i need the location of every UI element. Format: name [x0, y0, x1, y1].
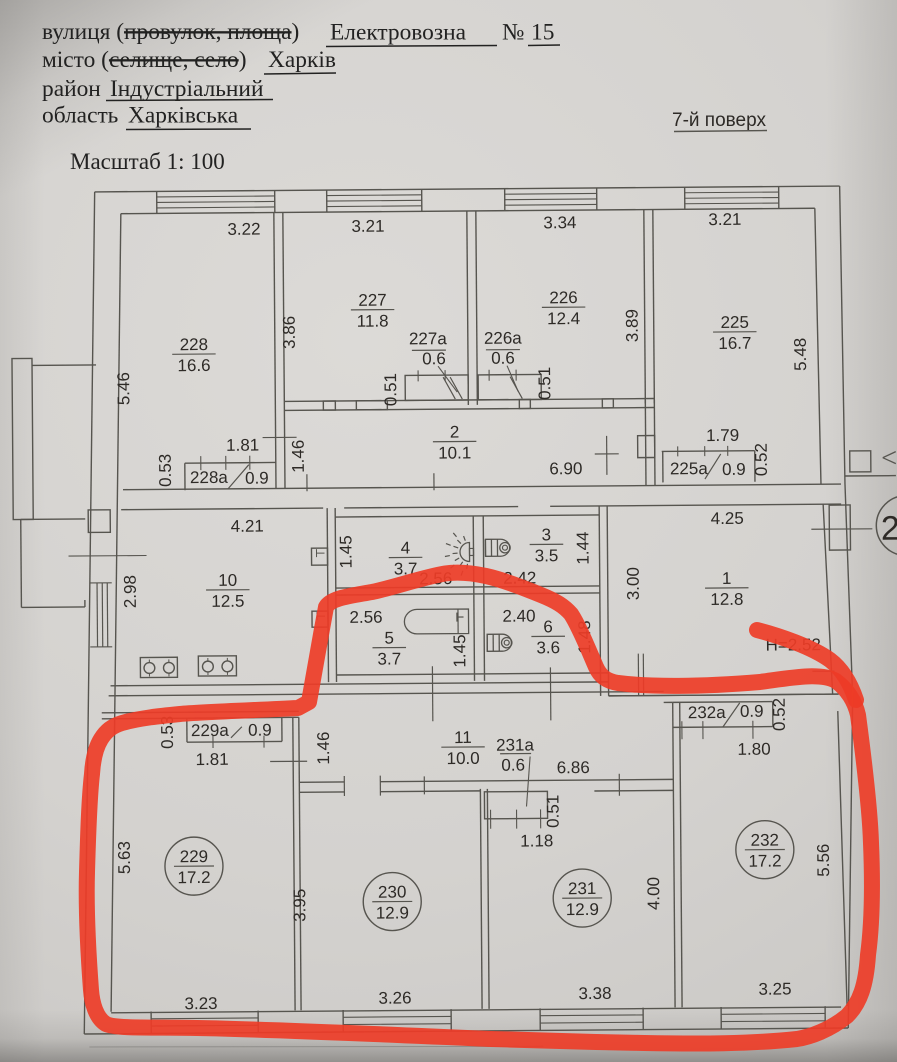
svg-text:0.53: 0.53	[156, 454, 175, 487]
svg-text:2.56: 2.56	[349, 608, 382, 627]
svg-text:3.7: 3.7	[377, 649, 401, 668]
svg-text:227a: 227a	[409, 329, 448, 348]
svg-text:228a: 228a	[190, 468, 229, 487]
svg-text:226: 226	[549, 288, 578, 307]
svg-text:вулиця (провулок, площа): вулиця (провулок, площа)	[42, 19, 299, 45]
svg-text:5.48: 5.48	[791, 338, 810, 371]
svg-text:11.8: 11.8	[357, 312, 389, 331]
svg-text:1.45: 1.45	[336, 535, 355, 568]
svg-text:0.51: 0.51	[535, 367, 554, 400]
svg-text:4.25: 4.25	[711, 509, 744, 528]
svg-text:7-й поверх: 7-й поверх	[672, 110, 766, 131]
svg-text:3.21: 3.21	[708, 210, 741, 229]
svg-text:1.81: 1.81	[196, 750, 229, 769]
svg-text:Індустріальний: Індустріальний	[110, 76, 263, 102]
svg-text:6: 6	[543, 617, 553, 636]
svg-text:3.34: 3.34	[543, 213, 576, 232]
svg-text:Електровозна: Електровозна	[330, 20, 467, 46]
svg-text:231: 231	[568, 879, 597, 898]
svg-text:2: 2	[450, 423, 460, 442]
svg-text:12.9: 12.9	[376, 903, 409, 922]
svg-text:12.9: 12.9	[566, 900, 599, 919]
svg-text:1: 1	[722, 569, 732, 588]
svg-text:6.90: 6.90	[549, 459, 582, 478]
svg-text:4.00: 4.00	[644, 877, 663, 910]
svg-text:1.44: 1.44	[573, 531, 592, 564]
svg-text:0.52: 0.52	[752, 443, 771, 476]
svg-text:225: 225	[720, 313, 749, 332]
svg-text:3.21: 3.21	[351, 217, 384, 236]
svg-text:№: №	[502, 20, 524, 46]
svg-text:1.18: 1.18	[520, 831, 553, 850]
svg-text:231a: 231a	[496, 735, 535, 754]
svg-text:1.45: 1.45	[450, 634, 469, 667]
svg-text:10.0: 10.0	[447, 749, 480, 768]
svg-text:5.46: 5.46	[114, 372, 133, 405]
svg-text:Харків: Харків	[268, 47, 336, 73]
svg-text:3.5: 3.5	[535, 546, 559, 565]
svg-text:225a: 225a	[670, 459, 709, 478]
svg-text:5: 5	[384, 629, 394, 648]
svg-text:230: 230	[378, 882, 407, 901]
svg-text:4.21: 4.21	[231, 517, 264, 536]
svg-text:226a: 226a	[484, 329, 523, 348]
svg-text:0.51: 0.51	[543, 795, 562, 828]
svg-text:16.7: 16.7	[718, 334, 751, 353]
svg-text:11: 11	[454, 728, 472, 747]
svg-text:3.38: 3.38	[578, 984, 611, 1003]
svg-text:Масштаб 1: 100: Масштаб 1: 100	[70, 149, 225, 174]
svg-text:232: 232	[751, 831, 780, 850]
svg-text:3.26: 3.26	[378, 988, 411, 1007]
svg-text:1.80: 1.80	[737, 740, 770, 759]
svg-text:3: 3	[542, 525, 552, 544]
svg-text:0.6: 0.6	[501, 756, 525, 775]
svg-text:область: область	[42, 102, 118, 128]
svg-text:2: 2	[881, 510, 897, 548]
svg-text:228: 228	[180, 335, 209, 354]
svg-text:місто (селище, село): місто (селище, село)	[42, 47, 246, 73]
svg-text:1.81: 1.81	[226, 436, 259, 455]
svg-text:3.00: 3.00	[624, 567, 643, 600]
svg-text:1.46: 1.46	[289, 440, 308, 473]
svg-text:12.8: 12.8	[710, 590, 743, 609]
svg-text:17.2: 17.2	[748, 851, 781, 870]
svg-text:1.79: 1.79	[706, 426, 739, 445]
svg-text:Харківська: Харківська	[128, 102, 239, 128]
svg-text:0.9: 0.9	[740, 702, 764, 721]
svg-text:0.9: 0.9	[722, 460, 746, 479]
svg-text:0.51: 0.51	[381, 373, 400, 406]
svg-text:район: район	[42, 76, 101, 102]
svg-text:0.9: 0.9	[248, 721, 272, 740]
svg-text:227: 227	[358, 291, 387, 310]
svg-text:3.22: 3.22	[227, 220, 260, 239]
svg-text:16.6: 16.6	[177, 356, 210, 375]
svg-text:0.6: 0.6	[422, 349, 446, 368]
svg-text:0.9: 0.9	[245, 469, 269, 488]
svg-text:4: 4	[401, 538, 411, 557]
svg-text:15: 15	[531, 20, 554, 46]
svg-text:3.86: 3.86	[280, 316, 299, 349]
svg-text:10.1: 10.1	[438, 443, 471, 462]
svg-text:229a: 229a	[191, 721, 230, 740]
svg-text:3.25: 3.25	[758, 979, 791, 998]
svg-text:229: 229	[180, 847, 209, 866]
svg-text:0.6: 0.6	[491, 349, 515, 368]
svg-text:6.86: 6.86	[557, 758, 590, 777]
svg-text:10: 10	[218, 571, 237, 590]
svg-text:3.23: 3.23	[184, 994, 217, 1013]
svg-text:5.63: 5.63	[115, 841, 134, 874]
svg-text:232a: 232a	[688, 703, 727, 722]
svg-text:3.89: 3.89	[623, 309, 642, 342]
svg-text:5.56: 5.56	[814, 844, 833, 877]
svg-text:3.6: 3.6	[536, 638, 560, 657]
svg-text:3.95: 3.95	[290, 889, 309, 922]
svg-text:2.98: 2.98	[121, 575, 140, 608]
svg-text:1.46: 1.46	[314, 731, 333, 764]
svg-text:12.4: 12.4	[547, 309, 580, 328]
svg-text:12.5: 12.5	[211, 592, 244, 611]
svg-text:2.40: 2.40	[502, 606, 535, 625]
svg-text:17.2: 17.2	[177, 868, 210, 887]
svg-text:0.52: 0.52	[770, 698, 789, 731]
